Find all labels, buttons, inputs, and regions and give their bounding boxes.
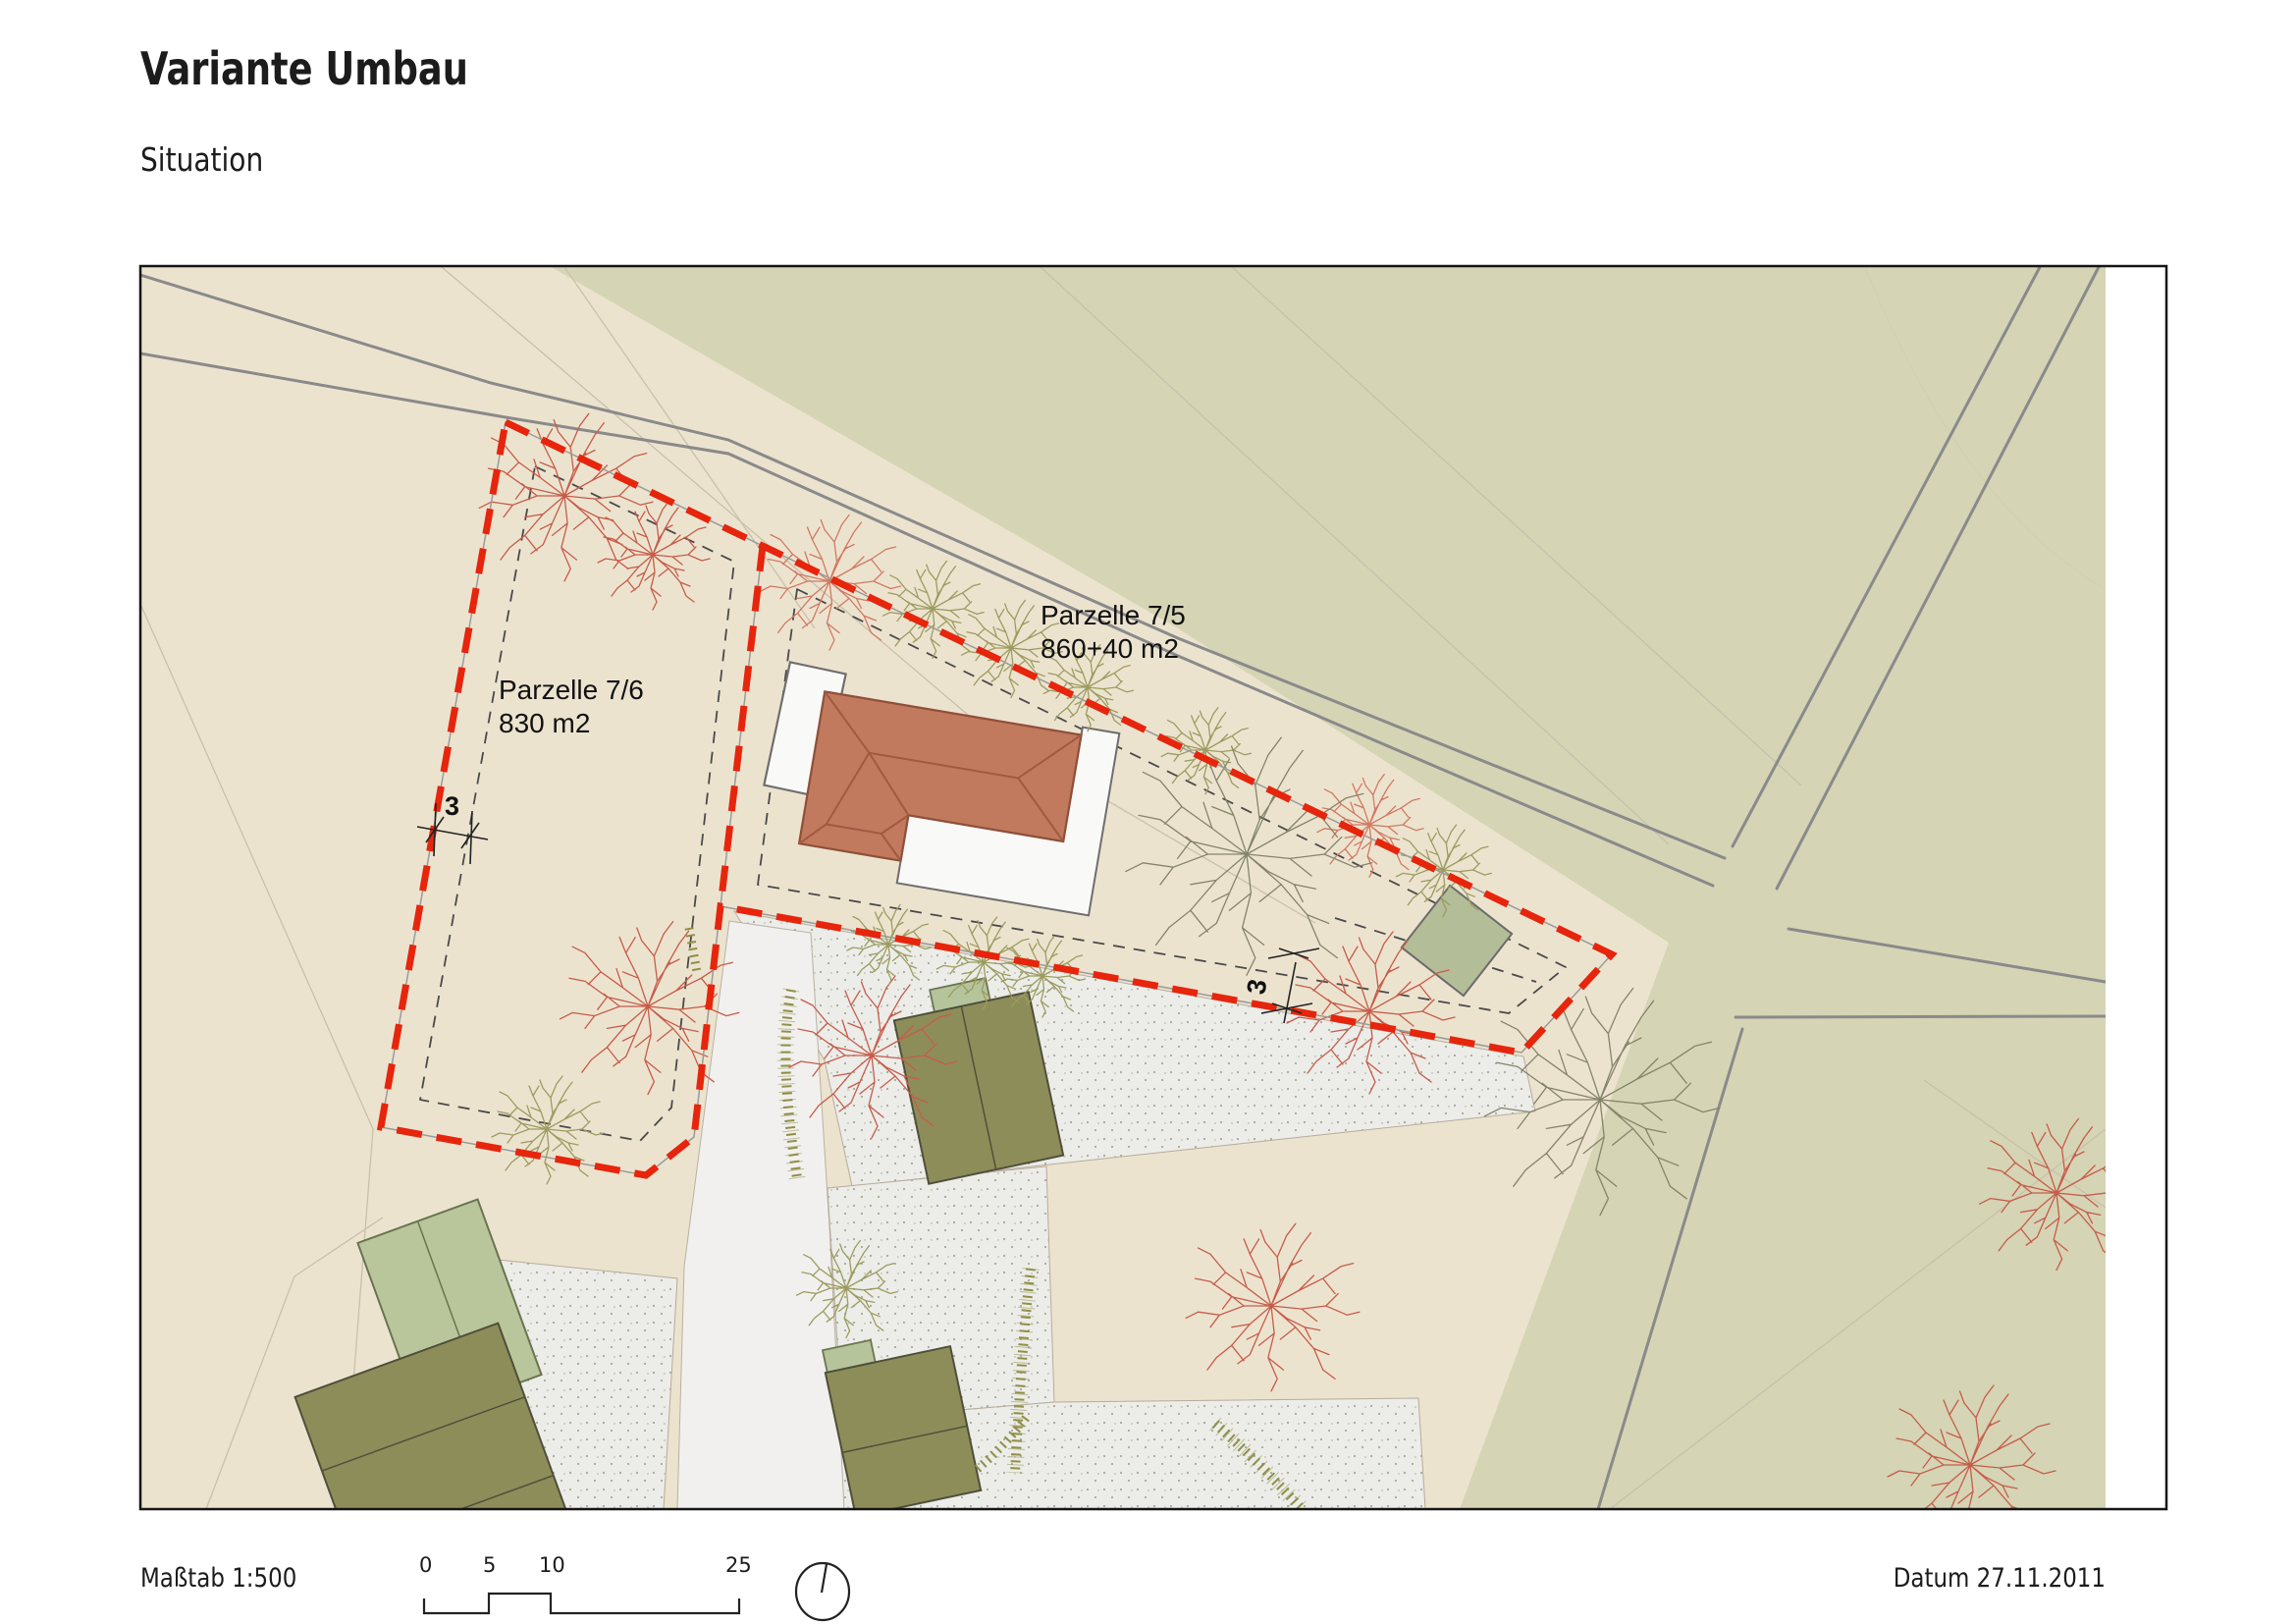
header: Variante Umbau Situation: [140, 42, 468, 180]
scale-tick-5: 5: [483, 1553, 496, 1577]
parcel-76-area: 830 m2: [499, 708, 590, 738]
map-right-margin: [2106, 267, 2164, 1508]
site-plan-canvas: Variante Umbau Situation: [0, 0, 2296, 1624]
parcel-76-name: Parzelle 7/6: [499, 675, 644, 705]
scale-bar-line: [424, 1594, 739, 1613]
scale-label: Maßtab 1:500: [140, 1562, 296, 1593]
parcel-75-area: 860+40 m2: [1041, 633, 1179, 664]
scale-tick-0: 0: [419, 1553, 432, 1577]
site-plan-map: 3 3 Parzelle 7/5 860+40 m2 Parzelle 7/6 …: [140, 266, 2136, 1618]
north-arrow-icon: [796, 1563, 849, 1620]
footer: Maßtab 1:500 0 5 10 25 Datum 27.11.2011: [140, 1553, 2106, 1620]
date-label: Datum 27.11.2011: [1894, 1562, 2106, 1593]
scale-tick-10: 10: [539, 1553, 565, 1577]
dimension-label: 3: [445, 791, 459, 821]
page-subtitle: Situation: [140, 142, 263, 180]
page-title: Variante Umbau: [140, 42, 468, 95]
scale-tick-25: 25: [725, 1553, 752, 1577]
scale-bar: 0 5 10 25: [419, 1553, 752, 1613]
parcel-75-name: Parzelle 7/5: [1041, 600, 1186, 630]
plan-sheet: Variante Umbau Situation: [0, 0, 2296, 1624]
